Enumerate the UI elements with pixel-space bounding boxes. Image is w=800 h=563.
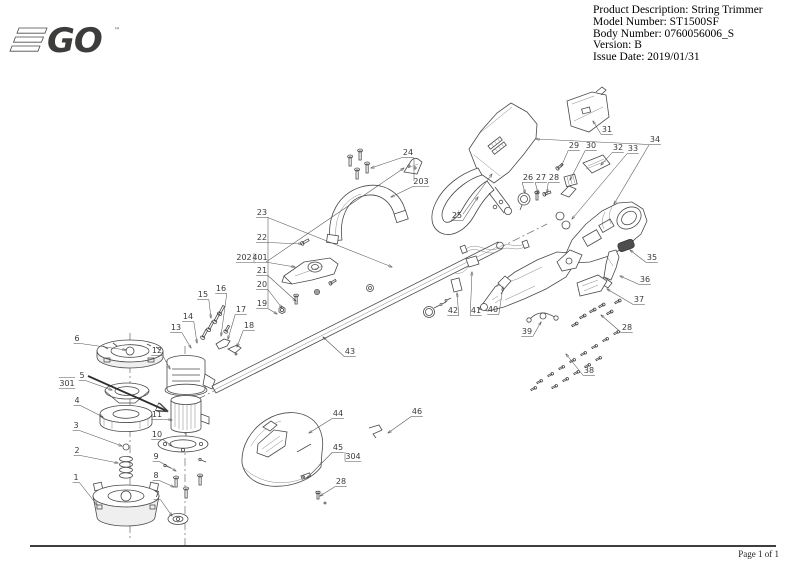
part-callout-34: 34	[536, 135, 661, 145]
part-callout-46: 46	[388, 407, 423, 433]
svg-text:5: 5	[79, 371, 84, 380]
svg-text:4: 4	[74, 396, 79, 405]
part-callout-15: 15	[197, 290, 211, 318]
parts-diagram-page: Product Description: String Trimmer Mode…	[0, 0, 800, 563]
svg-text:41: 41	[471, 306, 481, 315]
part-callout-26: 26	[522, 173, 534, 193]
svg-text:7: 7	[154, 490, 159, 499]
svg-text:16: 16	[216, 284, 226, 293]
svg-text:33: 33	[628, 144, 638, 153]
part-callout-18: 18	[237, 321, 255, 347]
svg-text:28: 28	[336, 477, 346, 486]
part-callout-28: 28	[601, 315, 633, 333]
svg-text:14: 14	[183, 312, 193, 321]
part-callout-19: 19	[256, 299, 277, 314]
handle-screws	[348, 149, 370, 179]
ego-logo-e-bars	[10, 28, 47, 51]
power-head-housing	[432, 103, 537, 234]
svg-text:45: 45	[333, 443, 343, 452]
part-callout-28: 28	[320, 477, 347, 496]
part-callout-304: 304	[345, 452, 361, 462]
svg-text:11: 11	[152, 410, 162, 419]
exploded-parts-diagram: GO ™	[0, 0, 800, 563]
svg-text:18: 18	[244, 321, 254, 330]
part-callout-43: 43	[323, 337, 356, 357]
svg-text:38: 38	[584, 366, 594, 375]
detent-ball-part	[123, 444, 129, 450]
svg-text:6: 6	[74, 334, 79, 343]
page-number: Page 1 of 1	[738, 549, 779, 559]
svg-text:12: 12	[152, 346, 162, 355]
svg-text:32: 32	[613, 143, 623, 152]
part-callout-42: 42	[447, 293, 459, 316]
part-callout-401: 401	[252, 253, 295, 267]
svg-text:19: 19	[257, 299, 267, 308]
part-callout-14: 14	[182, 312, 197, 343]
svg-text:301: 301	[59, 379, 74, 388]
part-callout-39: 39	[521, 322, 541, 337]
svg-text:42: 42	[448, 306, 458, 315]
svg-text:31: 31	[602, 125, 612, 134]
mount-plate-part	[158, 436, 208, 452]
svg-text:1: 1	[73, 473, 78, 482]
svg-text:24: 24	[403, 148, 413, 157]
screw-set-28	[571, 299, 621, 328]
svg-text:34: 34	[650, 135, 660, 144]
svg-text:28: 28	[622, 323, 632, 332]
guard-part	[242, 413, 382, 504]
svg-text:203: 203	[413, 177, 428, 186]
svg-text:22: 22	[257, 233, 267, 242]
svg-text:35: 35	[647, 253, 657, 262]
aux-handle-part	[326, 158, 422, 243]
part-callout-203: 203	[391, 177, 429, 197]
shaft-tube-part	[212, 242, 503, 393]
part-callout-13: 13	[170, 323, 191, 348]
svg-text:304: 304	[345, 452, 360, 461]
head-motor-part	[171, 396, 209, 440]
svg-text:10: 10	[152, 430, 162, 439]
svg-text:27: 27	[536, 173, 546, 182]
part-callout-36: 36	[620, 275, 651, 285]
part-callout-2: 2	[74, 446, 118, 463]
svg-text:8: 8	[153, 471, 158, 480]
svg-text:43: 43	[345, 347, 355, 356]
svg-text:36: 36	[640, 275, 650, 284]
svg-text:20: 20	[257, 280, 267, 289]
svg-text:28: 28	[549, 173, 559, 182]
part-callout-23: 23	[256, 208, 392, 267]
d-handle-grip	[432, 168, 494, 234]
part-callout-11: 11	[151, 410, 172, 420]
gear-housing-part	[165, 356, 215, 396]
svg-text:30: 30	[586, 141, 596, 150]
part-callout-301: 301	[59, 378, 75, 389]
svg-text:3: 3	[73, 421, 78, 430]
part-callout-9: 9	[153, 452, 176, 471]
part-callout-24: 24	[371, 148, 414, 168]
ego-logo-go-text: GO	[47, 21, 102, 61]
spring-part	[120, 456, 133, 478]
svg-text:26: 26	[523, 173, 533, 182]
trademark-symbol: ™	[114, 27, 120, 34]
svg-text:9: 9	[153, 452, 158, 461]
part-callout-35: 35	[630, 250, 658, 263]
svg-text:25: 25	[452, 211, 462, 220]
part-callout-1: 1	[73, 473, 97, 505]
svg-text:17: 17	[236, 305, 246, 314]
part-callout-29: 29	[561, 141, 580, 167]
svg-text:23: 23	[257, 208, 267, 217]
ego-logo: GO ™	[10, 21, 120, 61]
svg-text:2: 2	[74, 446, 79, 455]
part-callout-202: 202	[236, 253, 252, 263]
part-callout-4: 4	[74, 396, 103, 417]
screw-set-38	[530, 330, 620, 391]
svg-text:202: 202	[236, 253, 251, 262]
svg-text:401: 401	[252, 253, 267, 262]
part-callout-37: 37	[607, 289, 645, 305]
svg-text:15: 15	[198, 290, 208, 299]
spool-part	[100, 405, 152, 431]
part-callout-27: 27	[535, 173, 547, 193]
svg-text:37: 37	[634, 295, 644, 304]
svg-text:44: 44	[333, 409, 343, 418]
part-callout-41: 41	[470, 272, 482, 316]
head-housing-part	[93, 482, 159, 526]
svg-text:46: 46	[412, 407, 422, 416]
shaft-fasteners	[200, 305, 241, 355]
clamp-kit-parts	[279, 238, 338, 314]
svg-text:13: 13	[171, 323, 181, 332]
svg-text:40: 40	[488, 305, 498, 314]
svg-text:21: 21	[257, 266, 267, 275]
part-callout-28: 28	[547, 173, 560, 193]
svg-text:29: 29	[569, 141, 579, 150]
svg-text:39: 39	[522, 327, 532, 336]
head-screws	[164, 458, 206, 524]
